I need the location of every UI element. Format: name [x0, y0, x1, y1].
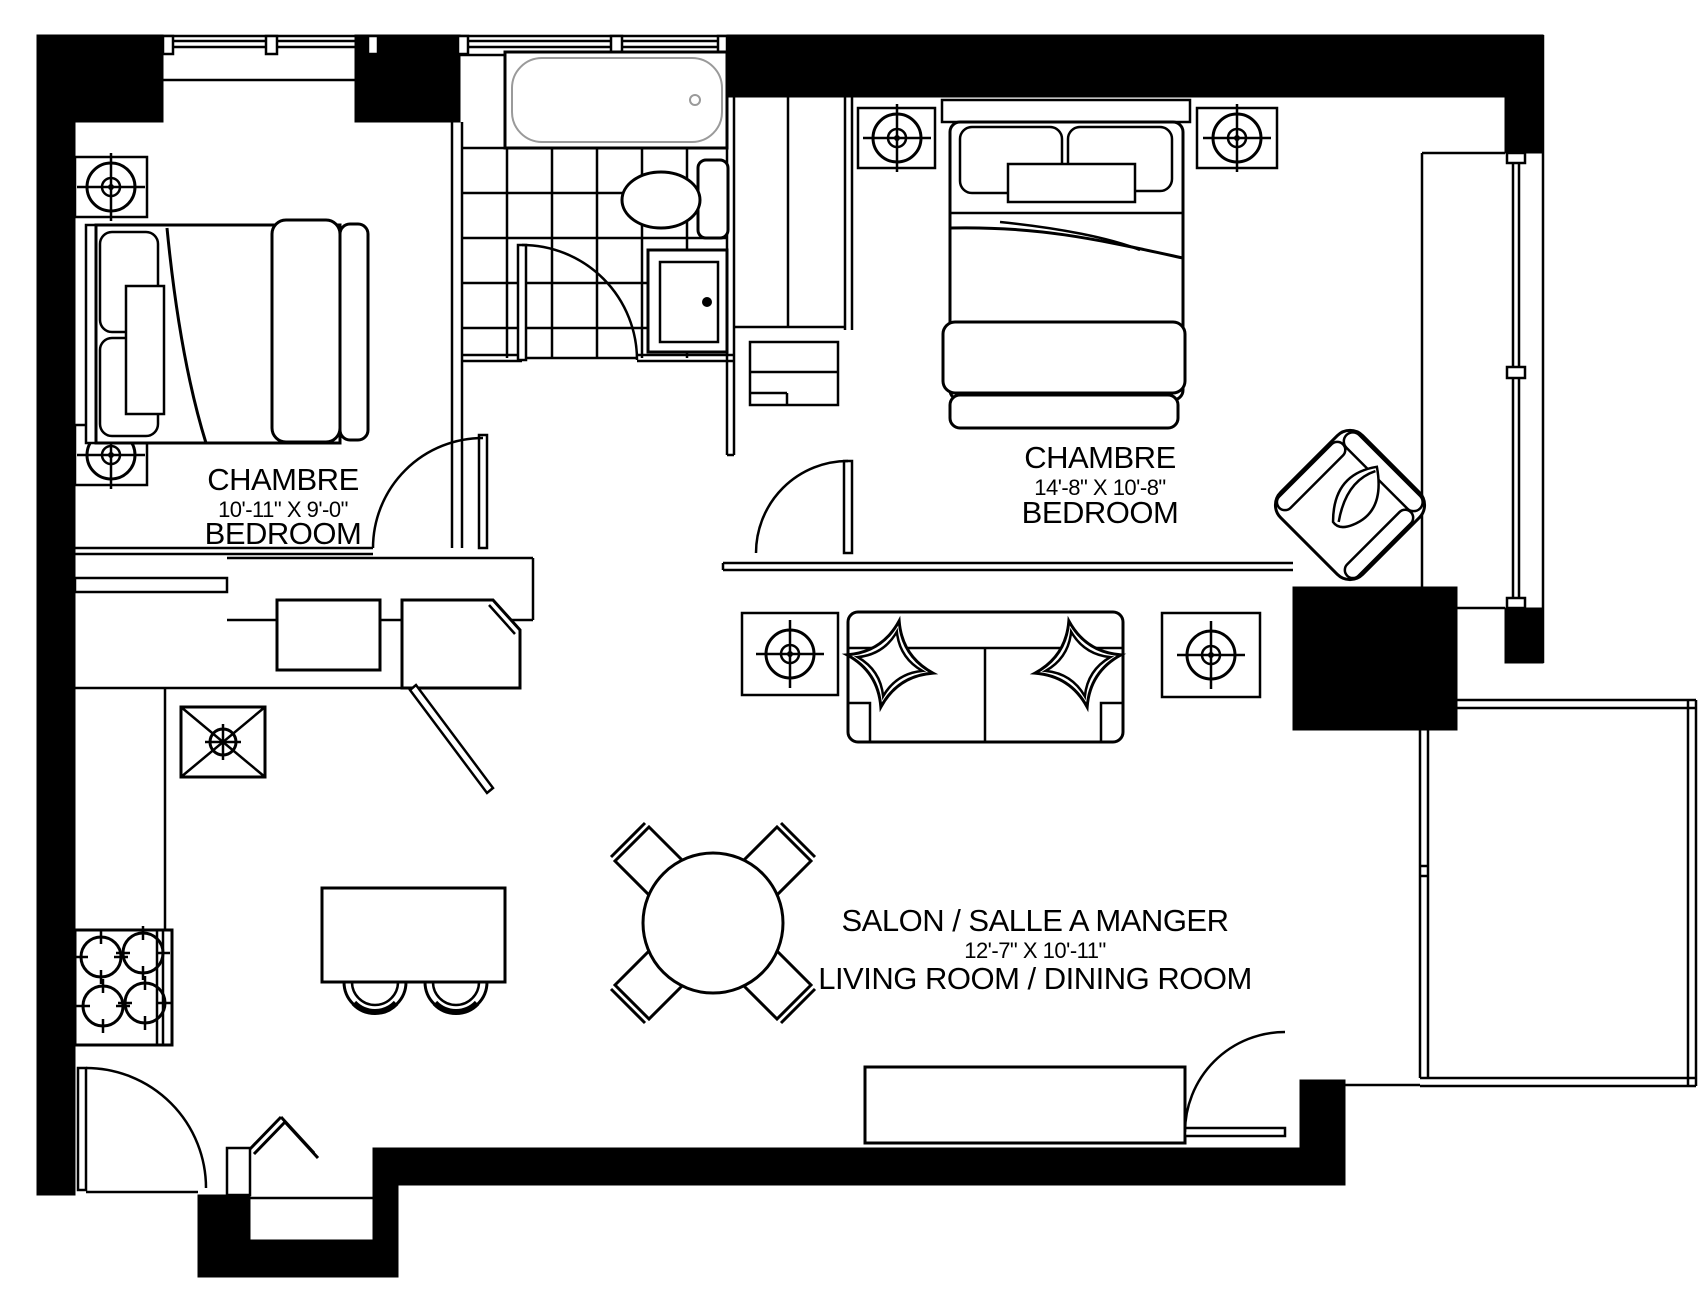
ceiling-light-icon: [181, 707, 265, 777]
room-label-living-dining: SALON / SALLE A MANGER 12'-7" X 10'-11" …: [818, 903, 1252, 996]
double-bed-icon: [86, 220, 368, 443]
room-name-fr: CHAMBRE: [1024, 440, 1176, 475]
bedroom-right-door-swing: [756, 461, 852, 553]
entry-closet-bifold-door: [227, 1117, 318, 1195]
bar-stool-icon: [425, 982, 487, 1013]
wardrobe-closet: [734, 97, 852, 330]
balcony-railing: [1420, 700, 1696, 1086]
tv-bench-icon: [865, 1067, 1185, 1143]
window-bedroom-right: [1422, 153, 1525, 608]
room-name-en: BEDROOM: [205, 516, 362, 551]
kitchen: [74, 558, 533, 1045]
room-name-en: LIVING ROOM / DINING ROOM: [818, 961, 1252, 996]
entrance: [78, 1068, 373, 1198]
room-name-en: BEDROOM: [1022, 495, 1179, 530]
corner-cabinet-icon: [402, 600, 520, 793]
room-label-bedroom-left: CHAMBRE 10'-11" X 9'-0" BEDROOM: [205, 462, 362, 551]
dining-set: [611, 823, 815, 1023]
vanity-cabinet-icon: [648, 250, 727, 352]
counter-step: [75, 578, 227, 592]
balcony-sliding-door: [1420, 730, 1428, 1078]
dishwasher-icon: [277, 600, 380, 670]
bar-stool-icon: [344, 982, 406, 1013]
bathroom-door-swing: [518, 245, 637, 360]
room-name-fr: SALON / SALLE A MANGER: [842, 903, 1229, 938]
room-dimensions: 12'-7" X 10'-11": [964, 938, 1106, 963]
balcony-door-swing: [1185, 1032, 1285, 1136]
room-name-fr: CHAMBRE: [207, 462, 359, 497]
window-bedroom-left: [163, 36, 378, 80]
dresser-icon: [750, 342, 838, 405]
balcony: [1345, 700, 1696, 1086]
floor-plan: CHAMBRE 10'-11" X 9'-0" BEDROOM CHAMBRE …: [0, 0, 1705, 1307]
living-dining: [611, 612, 1285, 1143]
sofa-icon: [838, 612, 1130, 742]
open-cabinet-door: [410, 685, 493, 793]
bathtub-icon: [505, 52, 727, 148]
entry-door-swing: [78, 1068, 206, 1192]
kitchen-island: [322, 888, 505, 1013]
room-label-bedroom-right: CHAMBRE 14'-8" X 10'-8" BEDROOM: [1022, 440, 1179, 530]
double-bed-icon: [942, 100, 1190, 428]
bathroom: [462, 52, 728, 360]
toilet-icon: [622, 160, 728, 238]
dining-table-icon: [643, 853, 783, 993]
bedroom-left-door-swing: [373, 435, 487, 548]
stove-icon: [74, 926, 172, 1045]
